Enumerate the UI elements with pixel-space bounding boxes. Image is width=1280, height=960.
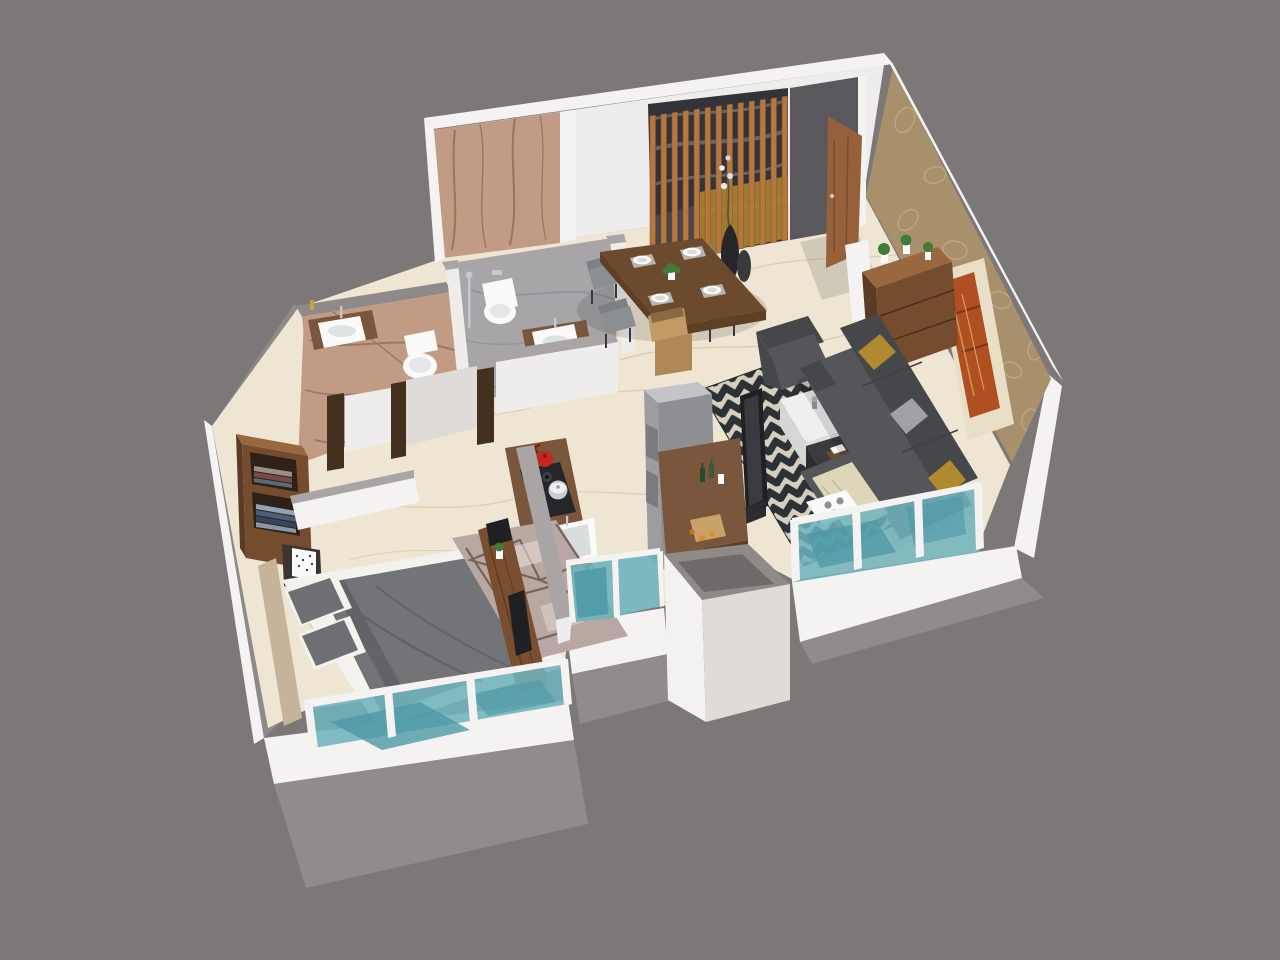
door-handle — [830, 194, 834, 198]
steel-pot — [549, 481, 568, 500]
door-frame — [391, 381, 406, 459]
door-frame — [327, 393, 344, 471]
floor-plan-stage — [0, 0, 1280, 960]
bathroom2-marble-wall — [433, 110, 576, 258]
faucet — [340, 306, 342, 318]
duct-shaft — [664, 544, 790, 722]
glass-panel — [617, 554, 660, 616]
door-frame — [477, 367, 494, 445]
floor-plan-render — [0, 0, 1280, 960]
